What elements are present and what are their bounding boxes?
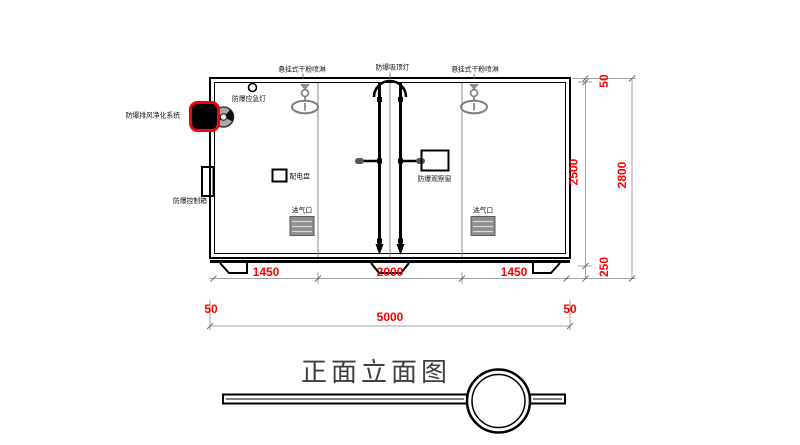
dim-50-bottom-right: 50 [563,302,577,316]
power-panel-icon [273,170,287,182]
dim-1450-right: 1450 [501,265,528,279]
exhaust-purifier-icon [191,103,219,131]
dim-50-bottom-left: 50 [204,302,218,316]
dim-2500-interior: 2500 [567,158,581,185]
dry-powder-sprinkler-left-icon [292,84,318,113]
air-inlet-right-icon [471,217,495,236]
control-box-icon [202,167,214,196]
exhaust-purifier-label: 防爆排风净化系统 [126,111,181,120]
dim-250-base: 250 [597,257,611,277]
dim-2800-total-height: 2800 [615,161,629,188]
observation-window-icon [422,151,449,171]
emergency-light-icon [249,84,257,92]
drawing-title: 正面立面图 [301,358,451,388]
control-box-label: 防爆控制箱 [173,196,207,205]
elevation-drawing-canvas: 防爆应急灯 防爆排风净化系统 防爆控制箱 配电盘 防爆观察窗 进气口 进气口 悬… [0,0,800,445]
observation-window-label: 防爆观察窗 [418,174,452,183]
front-elevation-svg: 防爆应急灯 防爆排风净化系统 防爆控制箱 配电盘 防爆观察窗 进气口 进气口 悬… [0,0,800,445]
riser-pipes-icon [355,81,425,257]
dim-2000-center: 2000 [377,265,404,279]
dim-50-roof: 50 [597,74,611,88]
air-inlet-right-label: 进气口 [473,206,493,215]
dry-powder-sprinkler-right-icon [461,84,487,113]
air-inlet-left-label: 进气口 [292,206,312,215]
dim-5000-total: 5000 [377,310,404,324]
ceiling-light-label: 防爆吸顶灯 [376,63,410,72]
sprinkler-right-label: 悬挂式干粉喷淋 [451,65,499,74]
emergency-light-label: 防爆应急灯 [232,94,266,103]
sprinkler-left-label: 悬挂式干粉喷淋 [278,65,326,74]
air-inlet-left-icon [290,217,314,236]
dim-1450-left: 1450 [253,265,280,279]
power-panel-label: 配电盘 [290,172,311,181]
